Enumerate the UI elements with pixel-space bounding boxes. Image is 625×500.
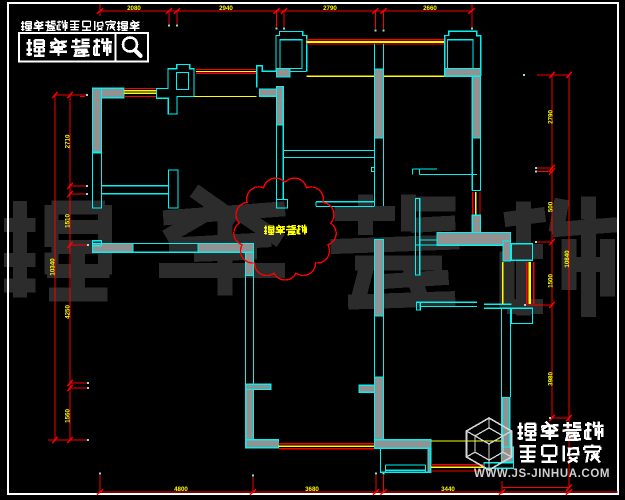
svg-text:2790: 2790 — [323, 5, 337, 12]
svg-text:WWW.JS-JINHUA.COM: WWW.JS-JINHUA.COM — [474, 468, 610, 480]
svg-text:4250: 4250 — [64, 305, 71, 319]
svg-text:2080: 2080 — [127, 5, 141, 12]
svg-text:3980: 3980 — [547, 372, 554, 386]
svg-text:10840: 10840 — [564, 250, 571, 268]
svg-text:10340: 10340 — [49, 258, 56, 276]
svg-text:2660: 2660 — [423, 5, 437, 12]
svg-text:1510: 1510 — [64, 214, 71, 228]
svg-text:2710: 2710 — [64, 134, 71, 148]
svg-text:1500: 1500 — [547, 274, 554, 288]
svg-text:2940: 2940 — [219, 5, 233, 12]
svg-text:3680: 3680 — [305, 486, 319, 493]
svg-text:500: 500 — [547, 201, 554, 212]
svg-text:2790: 2790 — [547, 110, 554, 124]
svg-text:1560: 1560 — [64, 409, 71, 423]
svg-text:4800: 4800 — [174, 486, 188, 493]
svg-text:3440: 3440 — [441, 486, 455, 493]
